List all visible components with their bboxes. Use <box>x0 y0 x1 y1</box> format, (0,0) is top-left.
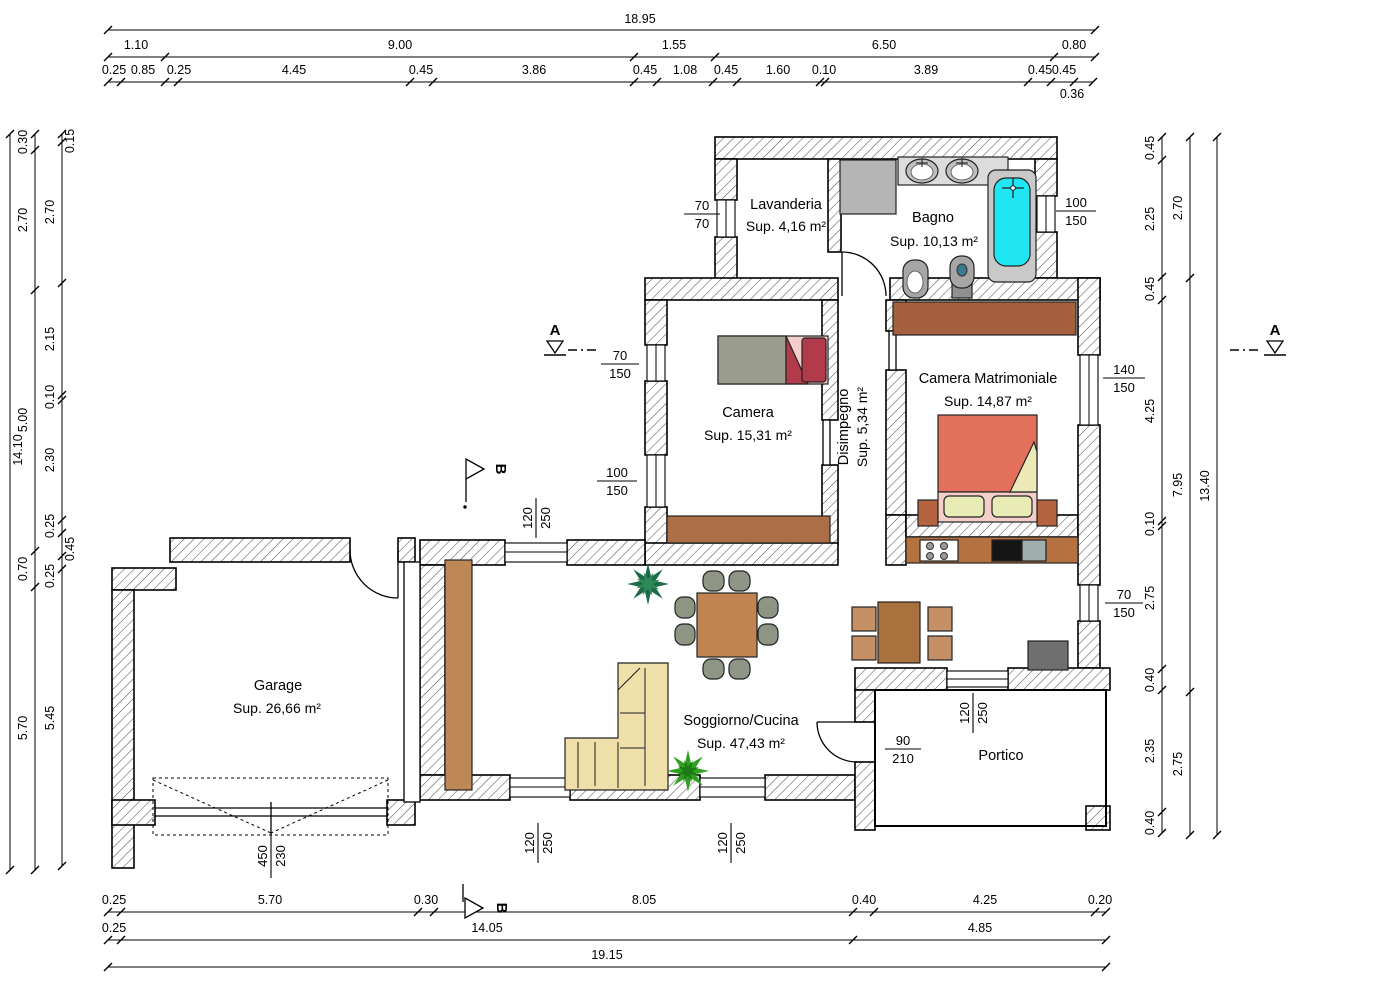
svg-text:2.75: 2.75 <box>1171 752 1185 776</box>
kitchen-counter-symbol <box>906 537 1078 563</box>
section-marker-a-left: A <box>544 322 600 355</box>
room-label-disimpegno: Disimpegno Sup. 5,34 m² <box>836 387 870 467</box>
bidet-symbol <box>950 256 974 298</box>
plant-symbol <box>667 750 709 792</box>
svg-text:A: A <box>1270 322 1281 339</box>
garage-door <box>153 778 388 835</box>
dimensions-left: 14.10 0.30 2.70 5.00 0.70 5.70 0.15 2.70… <box>6 129 77 874</box>
label-portico-window: 120 250 <box>957 693 990 733</box>
svg-text:2.35: 2.35 <box>1143 739 1157 763</box>
svg-text:250: 250 <box>538 507 553 529</box>
svg-text:0.25: 0.25 <box>43 564 57 588</box>
svg-text:4.45: 4.45 <box>282 63 306 77</box>
svg-text:5.70: 5.70 <box>258 893 282 907</box>
room-area-matrimoniale: Sup. 14,87 m² <box>944 393 1032 409</box>
camera-wardrobe-symbol <box>667 516 830 543</box>
label-lavanderia-window: 70 70 <box>684 198 720 231</box>
svg-text:0.85: 0.85 <box>131 63 155 77</box>
svg-text:5.45: 5.45 <box>43 706 57 730</box>
toilet-symbol <box>903 260 928 298</box>
svg-text:B: B <box>493 903 510 914</box>
svg-text:150: 150 <box>606 483 628 498</box>
svg-text:9.00: 9.00 <box>388 38 412 52</box>
cucina-window <box>1080 585 1098 621</box>
svg-text:70: 70 <box>613 348 627 363</box>
svg-text:0.45: 0.45 <box>1143 136 1157 160</box>
portico-window <box>947 671 1008 687</box>
label-garage-door: 450 230 <box>255 834 288 878</box>
camera-window-lower <box>647 455 665 507</box>
svg-text:250: 250 <box>733 832 748 854</box>
label-portico-door: 90 210 <box>885 733 921 766</box>
svg-text:0.45: 0.45 <box>63 537 77 561</box>
section-marker-a-right: A <box>1230 322 1286 355</box>
svg-text:2.70: 2.70 <box>43 200 57 224</box>
dining-table-symbol <box>675 571 778 679</box>
room-name-garage: Garage <box>254 678 302 694</box>
svg-text:450: 450 <box>255 845 270 867</box>
room-area-garage: Sup. 26,66 m² <box>233 700 321 716</box>
svg-text:120: 120 <box>520 507 535 529</box>
shower-symbol <box>840 160 896 214</box>
svg-text:70: 70 <box>695 198 709 213</box>
section-marker-b-bottom: B <box>463 884 510 918</box>
svg-text:1.60: 1.60 <box>766 63 790 77</box>
stove-symbol <box>920 540 958 561</box>
furniture <box>445 157 1078 792</box>
label-soggiorno-window-b1: 120 250 <box>522 823 555 863</box>
svg-text:3.86: 3.86 <box>522 63 546 77</box>
svg-text:210: 210 <box>892 751 914 766</box>
svg-text:0.10: 0.10 <box>43 385 57 409</box>
dim-top-extra: 0.36 <box>1060 87 1084 101</box>
svg-text:150: 150 <box>1065 213 1087 228</box>
svg-text:150: 150 <box>1113 605 1135 620</box>
svg-text:0.45: 0.45 <box>1028 63 1052 77</box>
svg-text:0.30: 0.30 <box>16 130 30 154</box>
soggiorno-cabinet-symbol <box>445 560 472 790</box>
svg-text:0.45: 0.45 <box>409 63 433 77</box>
svg-text:0.25: 0.25 <box>102 63 126 77</box>
svg-text:0.45: 0.45 <box>1052 63 1076 77</box>
soggiorno-window-top <box>505 543 567 562</box>
svg-text:0.45: 0.45 <box>714 63 738 77</box>
label-cucina-window: 70 150 <box>1105 587 1143 620</box>
svg-text:1.08: 1.08 <box>673 63 697 77</box>
dimensions-right: 0.45 2.25 0.45 4.25 0.10 2.75 0.40 2.35 … <box>1143 133 1221 839</box>
soggiorno-window-bottom-1 <box>510 778 570 797</box>
sofa-symbol <box>565 663 668 790</box>
single-bed-symbol <box>718 336 828 384</box>
svg-text:70: 70 <box>1117 587 1131 602</box>
svg-text:8.05: 8.05 <box>632 893 656 907</box>
room-name-bagno: Bagno <box>912 210 954 226</box>
room-name-matrimoniale: Camera Matrimoniale <box>919 371 1058 387</box>
svg-text:5.00: 5.00 <box>16 408 30 432</box>
garage-side-door <box>350 550 398 598</box>
svg-text:0.10: 0.10 <box>1143 512 1157 536</box>
svg-text:4.25: 4.25 <box>1143 399 1157 423</box>
svg-text:230: 230 <box>273 845 288 867</box>
svg-text:250: 250 <box>540 832 555 854</box>
label-camera-window-lower: 100 150 <box>597 465 637 498</box>
label-bagno-window: 100 150 <box>1056 195 1096 228</box>
bathtub-symbol <box>988 170 1036 282</box>
svg-text:250: 250 <box>975 702 990 724</box>
label-camera-window-upper: 70 150 <box>601 348 639 381</box>
room-name-lavanderia: Lavanderia <box>750 197 823 213</box>
dim-top-total: 18.95 <box>624 12 655 26</box>
plant-symbol <box>627 563 669 605</box>
matrimoniale-window <box>1080 355 1098 425</box>
room-name-soggiorno: Soggiorno/Cucina <box>683 713 799 729</box>
bagno-door <box>842 252 886 296</box>
matrimoniale-door-leaf <box>889 331 896 370</box>
svg-text:0.20: 0.20 <box>1088 893 1112 907</box>
garage-house-partition <box>404 562 420 802</box>
portico-door <box>817 722 857 762</box>
lavanderia-window <box>717 200 735 237</box>
bagno-window <box>1037 196 1055 232</box>
svg-text:0.30: 0.30 <box>414 893 438 907</box>
svg-text:0.40: 0.40 <box>1143 811 1157 835</box>
svg-text:7.95: 7.95 <box>1171 473 1185 497</box>
svg-text:0.25: 0.25 <box>43 514 57 538</box>
floor-plan-drawing: Lavanderia Sup. 4,16 m² Bagno Sup. 10,13… <box>0 0 1386 984</box>
svg-text:5.70: 5.70 <box>16 716 30 740</box>
svg-text:3.89: 3.89 <box>914 63 938 77</box>
label-soggiorno-window-b2: 120 250 <box>715 823 748 863</box>
svg-text:6.50: 6.50 <box>872 38 896 52</box>
svg-text:120: 120 <box>715 832 730 854</box>
svg-text:4.25: 4.25 <box>973 893 997 907</box>
room-area-bagno: Sup. 10,13 m² <box>890 233 978 249</box>
svg-text:90: 90 <box>896 733 910 748</box>
svg-text:14.05: 14.05 <box>471 921 502 935</box>
soggiorno-window-bottom-2 <box>700 778 765 797</box>
room-name-disimpegno: Disimpegno <box>836 389 852 466</box>
svg-text:0.15: 0.15 <box>63 129 77 153</box>
svg-text:A: A <box>550 322 561 339</box>
svg-text:2.70: 2.70 <box>1171 196 1185 220</box>
room-name-portico: Portico <box>978 748 1023 764</box>
svg-text:0.40: 0.40 <box>1143 668 1157 692</box>
svg-text:2.15: 2.15 <box>43 327 57 351</box>
camera-window-upper <box>647 345 665 381</box>
svg-text:1.10: 1.10 <box>124 38 148 52</box>
double-bed-symbol <box>918 415 1057 526</box>
dim-left-total: 14.10 <box>11 434 25 465</box>
svg-text:0.70: 0.70 <box>16 557 30 581</box>
label-soggiorno-window-top: 120 250 <box>520 498 553 538</box>
small-table-symbol <box>852 602 952 663</box>
svg-text:2.70: 2.70 <box>16 208 30 232</box>
dimensions-bottom: 0.25 5.70 0.30 8.05 0.40 4.25 0.20 0.25 … <box>102 893 1112 971</box>
svg-text:100: 100 <box>1065 195 1087 210</box>
svg-text:1.55: 1.55 <box>662 38 686 52</box>
svg-text:0.45: 0.45 <box>1143 277 1157 301</box>
svg-text:0.10: 0.10 <box>812 63 836 77</box>
svg-text:140: 140 <box>1113 362 1135 377</box>
svg-text:0.25: 0.25 <box>102 921 126 935</box>
svg-text:2.30: 2.30 <box>43 448 57 472</box>
svg-text:0.45: 0.45 <box>633 63 657 77</box>
svg-text:4.85: 4.85 <box>968 921 992 935</box>
svg-text:70: 70 <box>695 216 709 231</box>
dim-right-total: 13.40 <box>1198 470 1212 501</box>
svg-text:B: B <box>492 464 509 475</box>
section-marker-b-middle: B <box>463 459 509 509</box>
svg-text:2.25: 2.25 <box>1143 207 1157 231</box>
matrimoniale-wardrobe-symbol <box>893 302 1076 335</box>
sink-symbol <box>992 540 1022 561</box>
label-matrimoniale-window: 140 150 <box>1103 362 1145 395</box>
svg-text:0.25: 0.25 <box>102 893 126 907</box>
room-area-camera: Sup. 15,31 m² <box>704 427 792 443</box>
camera-door-leaf <box>823 420 830 465</box>
room-area-disimpegno: Sup. 5,34 m² <box>854 387 870 467</box>
svg-text:120: 120 <box>957 702 972 724</box>
dimensions-top: 18.95 1.10 9.00 1.55 6.50 0.80 0.25 0.85… <box>102 12 1099 101</box>
room-area-lavanderia: Sup. 4,16 m² <box>746 218 826 234</box>
room-area-soggiorno: Sup. 47,43 m² <box>697 735 785 751</box>
svg-text:2.75: 2.75 <box>1143 586 1157 610</box>
svg-text:150: 150 <box>1113 380 1135 395</box>
svg-text:100: 100 <box>606 465 628 480</box>
room-name-camera: Camera <box>722 405 775 421</box>
dim-bottom-total: 19.15 <box>591 948 622 962</box>
svg-text:120: 120 <box>522 832 537 854</box>
svg-text:0.80: 0.80 <box>1062 38 1086 52</box>
svg-text:150: 150 <box>609 366 631 381</box>
storage-box-symbol <box>1028 641 1068 670</box>
svg-text:0.40: 0.40 <box>852 893 876 907</box>
svg-text:0.25: 0.25 <box>167 63 191 77</box>
